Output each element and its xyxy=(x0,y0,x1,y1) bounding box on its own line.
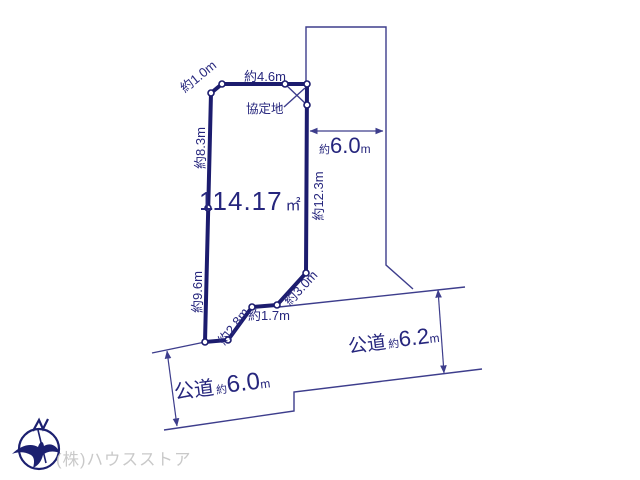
dim-bottom-middle: 約1.7m xyxy=(248,308,290,323)
agreement-corner-line xyxy=(285,84,307,105)
vertex-dot xyxy=(202,339,208,345)
vertex-dot xyxy=(208,90,214,96)
neighbor-parcel-outline xyxy=(306,27,413,289)
road-left-label: 公道約6.0m xyxy=(172,366,271,405)
road-left-top-boundary xyxy=(152,342,205,353)
east-setback-label: 約6.0m xyxy=(319,133,371,158)
road-right-label: 公道約6.2m xyxy=(347,322,441,358)
dim-top: 約4.6m xyxy=(244,69,286,84)
vertex-dot xyxy=(304,81,310,87)
dim-left-upper: 約8.3m xyxy=(193,127,208,169)
road-right-width-arrow xyxy=(438,290,444,373)
vertex-dot xyxy=(219,81,225,87)
site-plan-svg: 協定地 114.17㎡ 約1.0m 約4.6m 約8.3m 約9.6m 約12.… xyxy=(0,0,640,480)
dim-left-lower: 約9.6m xyxy=(190,271,205,313)
agreement-leader-line xyxy=(284,88,305,107)
plot-area-text: 114.17㎡ xyxy=(199,186,301,216)
north-compass xyxy=(12,419,60,469)
land-plot-diagram: 協定地 114.17㎡ 約1.0m 約4.6m 約8.3m 約9.6m 約12.… xyxy=(0,0,640,480)
agreement-label: 協定地 xyxy=(246,101,284,116)
dim-bottom-diag-right: 約3.0m xyxy=(281,267,321,308)
dim-bottom-diag-left: 約2.8m xyxy=(215,305,252,347)
vertex-dot xyxy=(304,102,310,108)
dim-right-side: 約12.3m xyxy=(311,171,326,220)
company-watermark: (株)ハウスストア xyxy=(56,450,192,469)
